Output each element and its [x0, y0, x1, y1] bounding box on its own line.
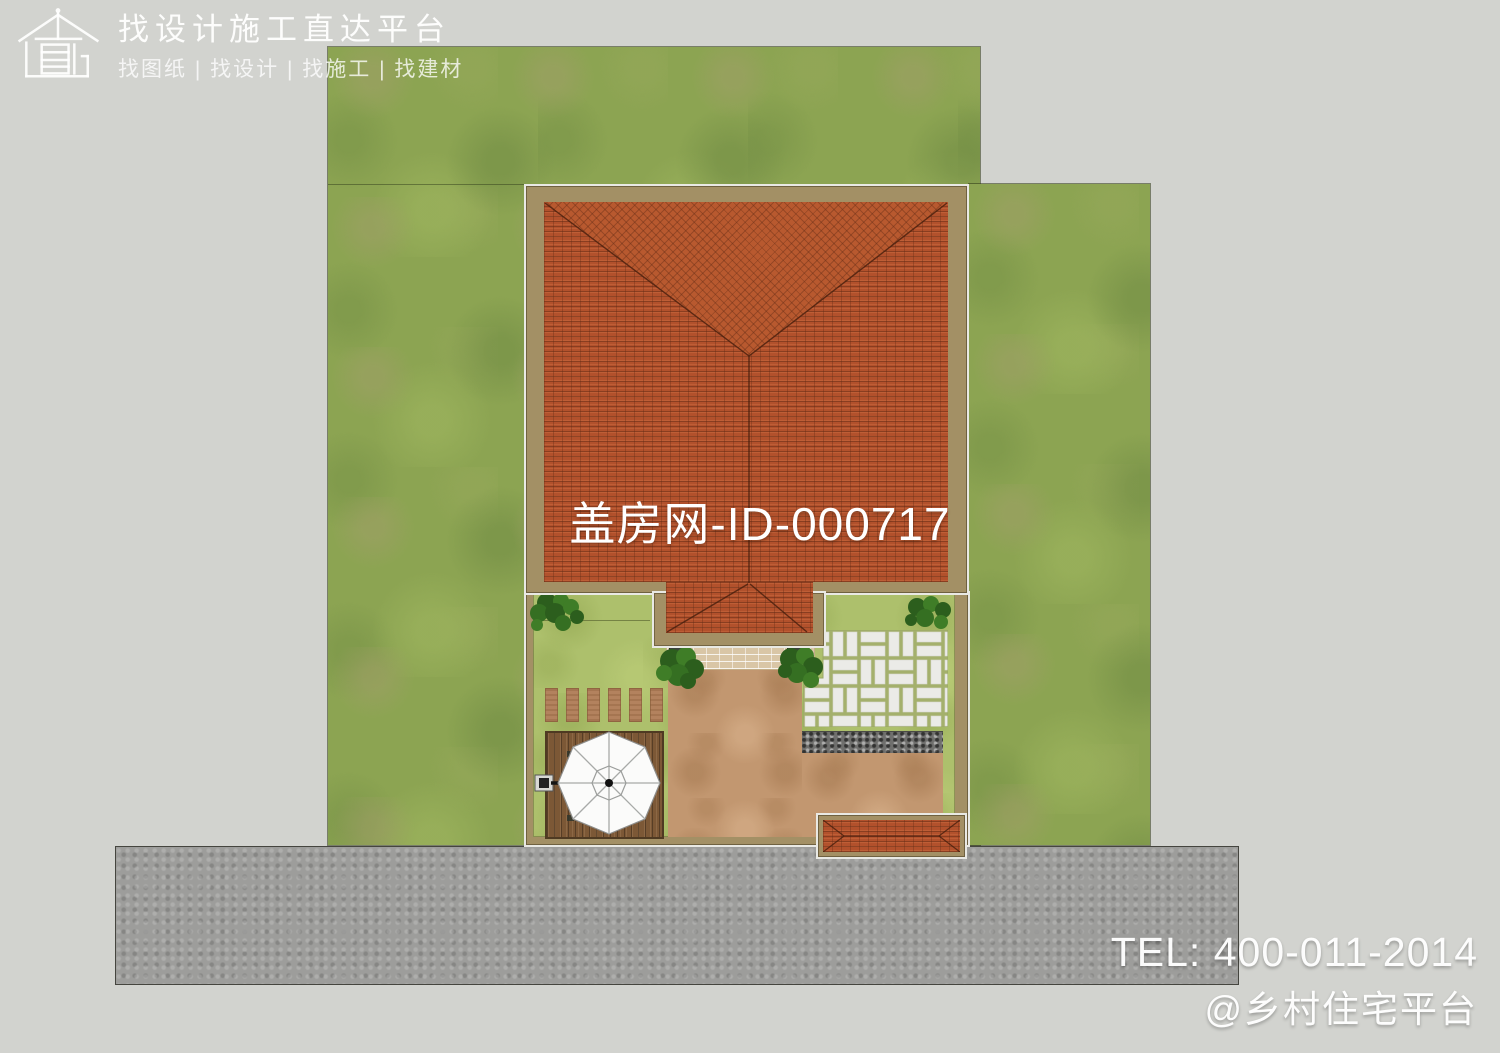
stepping-plank	[587, 688, 600, 722]
stepping-plank	[608, 688, 621, 722]
brand-text: 找设计施工直达平台 找图纸 | 找设计 | 找施工 | 找建材	[118, 6, 463, 83]
stepping-plank	[545, 688, 558, 722]
house-logo-icon	[10, 6, 106, 88]
stepping-plank	[629, 688, 642, 722]
contact-tel: TEL: 400-011-2014	[1111, 929, 1478, 976]
lawn-right	[969, 184, 1150, 845]
clay-path-main	[668, 668, 802, 837]
brand-title: 找设计施工直达平台	[118, 12, 463, 48]
garden-tree-northwest	[525, 591, 595, 635]
garden-tree-northeast	[901, 595, 957, 635]
gate-canopy	[818, 815, 965, 857]
stepping-plank	[566, 688, 579, 722]
entry-shrub-left	[654, 643, 710, 693]
brand-logo: 找设计施工直达平台 找图纸 | 找设计 | 找施工 | 找建材	[10, 6, 463, 88]
stepping-plank	[650, 688, 663, 722]
contact-handle: @乡村住宅平台	[1111, 979, 1478, 1033]
gate-canopy-tiles	[823, 820, 960, 852]
lawn-seam-line	[328, 184, 980, 185]
porch-roof-tiles	[666, 582, 813, 633]
asphalt-road	[115, 846, 1239, 985]
brand-subtitle: 找图纸 | 找设计 | 找施工 | 找建材	[118, 53, 463, 83]
contact-block: TEL: 400-011-2014 @乡村住宅平台	[1111, 929, 1478, 1033]
cantilever-umbrella-icon	[533, 725, 683, 843]
watermark-text: 盖房网-ID-000717	[569, 488, 950, 554]
entry-shrub-right	[775, 643, 827, 693]
entry-porch-roof	[654, 593, 824, 646]
site-plan-render: 盖房网-ID-000717 找设计施工直达平台 找图	[0, 0, 1500, 1053]
gravel-strip	[802, 731, 943, 754]
